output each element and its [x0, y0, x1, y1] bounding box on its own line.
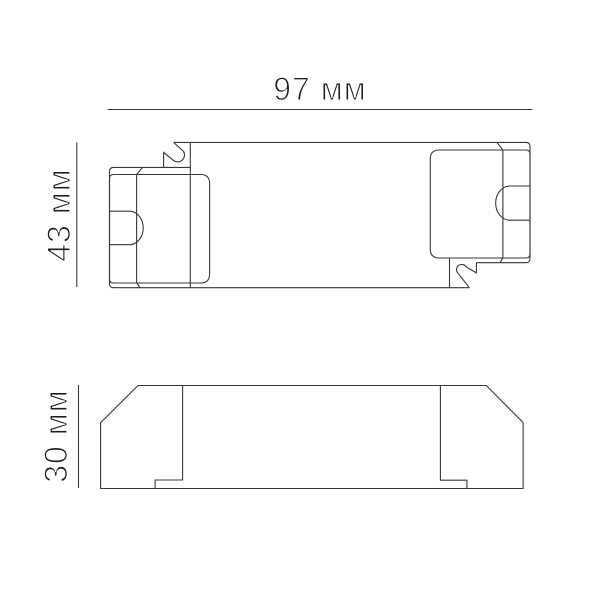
svg-text:30 мм: 30 мм [38, 389, 74, 482]
svg-text:43 мм: 43 мм [41, 168, 77, 261]
svg-text:97 мм: 97 мм [273, 71, 366, 107]
